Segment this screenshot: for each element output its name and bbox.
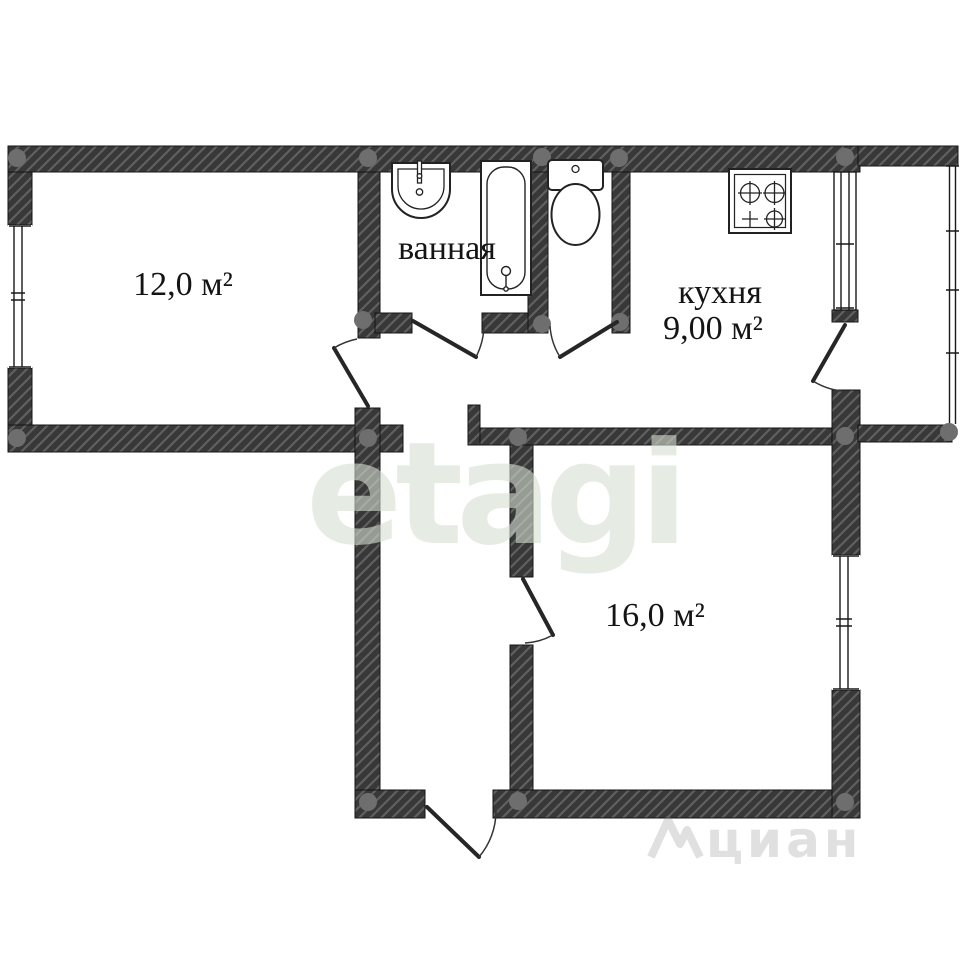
wall-left-lower [8, 368, 32, 425]
bathtub-icon [481, 161, 531, 295]
kitchen-window-sill [832, 310, 858, 322]
wall-bath-bottom-right [482, 313, 528, 333]
room12-area-label: 12,0 м² [133, 266, 233, 303]
wall-left-upper [8, 172, 32, 225]
wall-balcony-bottom [858, 425, 952, 442]
brand-watermark: etagi [306, 412, 681, 577]
toilet-icon [548, 160, 603, 245]
kitchen-balcony-window-icon [834, 172, 856, 310]
room16-area-label: 16,0 м² [605, 597, 705, 634]
bathroom-name-label: ванная [398, 230, 496, 267]
wall-wc-kitchen [612, 172, 630, 333]
kitchen-name-label: кухня [678, 274, 762, 311]
portal-watermark-text: циан [706, 811, 862, 869]
wall-bath-bottom-left [375, 313, 412, 333]
window-room12-icon [8, 225, 32, 368]
wall-room16-left-lower [510, 645, 533, 790]
floor-plan-drawing: 12,0 м² ванная кухня 9,00 м² 16,0 м² eta… [0, 0, 960, 960]
sink-icon [392, 161, 450, 218]
kitchen-area-label: 9,00 м² [663, 310, 763, 347]
stove-icon [729, 169, 791, 233]
wall-room16-right-upper [832, 390, 860, 555]
window-room16-icon [832, 555, 860, 690]
wall-balcony-top [858, 146, 958, 166]
floor-plan-canvas: 12,0 м² ванная кухня 9,00 м² 16,0 м² eta… [0, 0, 960, 960]
